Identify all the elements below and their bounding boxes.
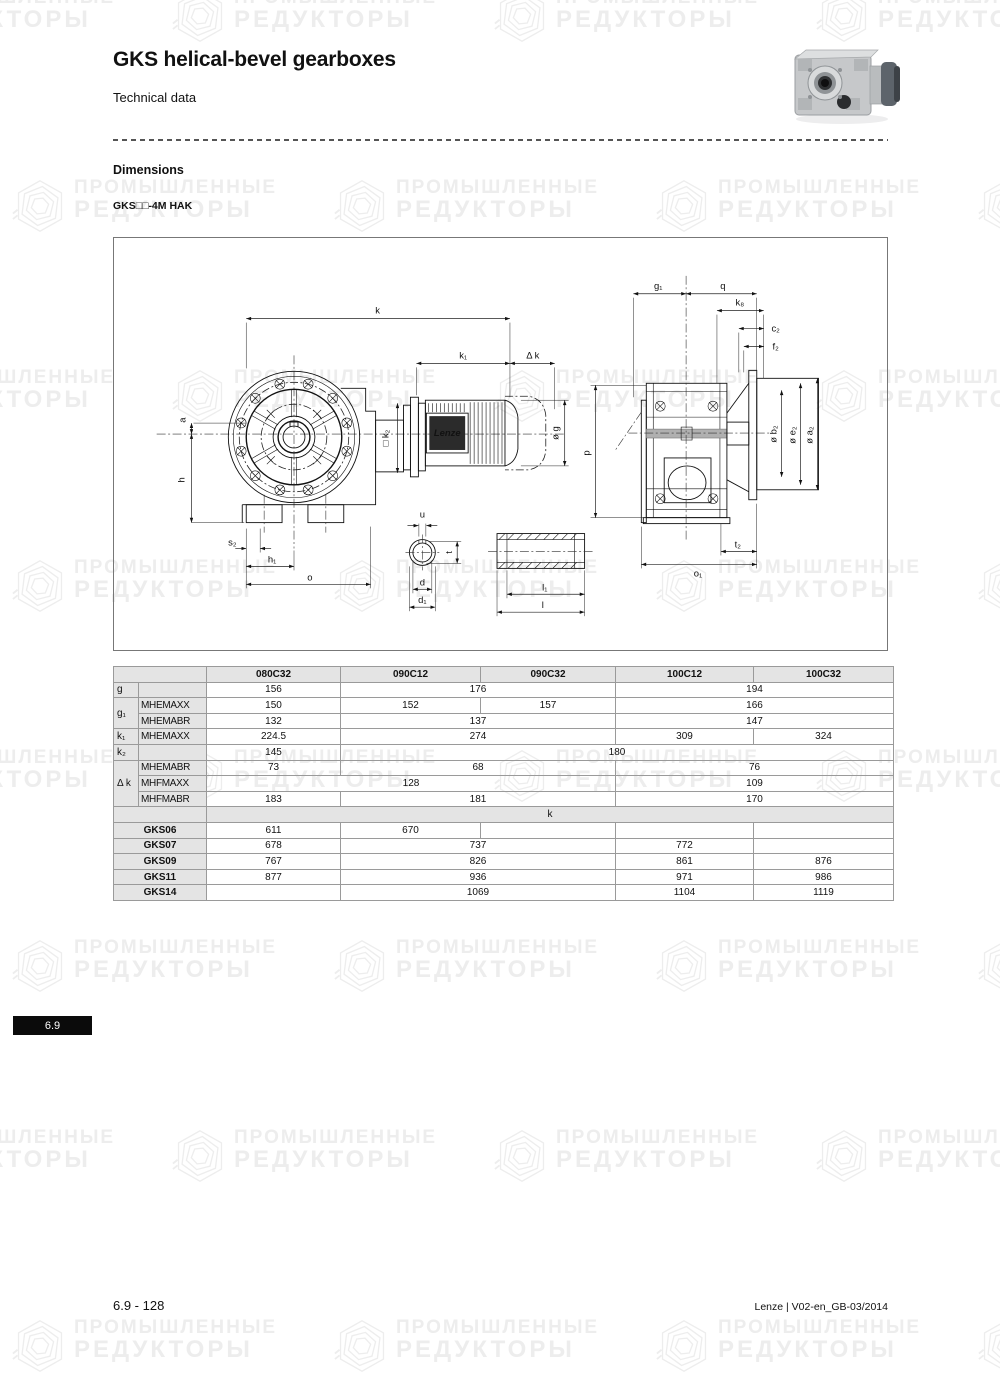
motor-side-view: Lenze — [403, 396, 545, 477]
gearbox-photo-illustration — [786, 42, 904, 126]
dim-label-k1: k₁ — [459, 350, 467, 361]
dimension-value: 971 — [616, 869, 754, 885]
section-heading: Dimensions — [113, 163, 184, 177]
dimension-value: 147 — [616, 713, 894, 729]
dim-label-u: u — [420, 510, 425, 521]
dim-label-s2: s₂ — [228, 538, 237, 549]
dimension-value: 128 — [207, 776, 616, 792]
dimension-value: 826 — [341, 854, 616, 870]
dimension-symbol: g₁ — [114, 698, 139, 729]
dimension-value: 109 — [616, 776, 894, 792]
gearbox-size-label: GKS09 — [114, 854, 207, 870]
dimension-value: 670 — [341, 822, 481, 838]
dim-label-t2: t₂ — [735, 539, 742, 550]
table-row: 080C32090C12090C32100C12100C32 — [114, 667, 894, 683]
dim-label-q: q — [720, 281, 725, 292]
catalog-page: ПРОМЫШЛЕННЫЕРЕДУКТОРЫ ПРОМЫШЛЕННЫЕРЕДУКТ… — [0, 0, 1000, 1395]
dimension-value: 157 — [481, 698, 616, 714]
motor-variant-label: MHFMAXX — [139, 776, 207, 792]
table-row: k₂145180 — [114, 744, 894, 760]
table-row: GKS06611670 — [114, 822, 894, 838]
dim-label-h: h — [177, 477, 188, 482]
shaft-end-detail — [405, 535, 439, 571]
dimension-drawing-svg: Lenze — [114, 238, 887, 650]
brand-label: Lenze — [434, 428, 461, 439]
dim-label-l1: l₁ — [542, 582, 547, 593]
dimension-value: 936 — [341, 869, 616, 885]
column-header: 080C32 — [207, 667, 341, 683]
motor-extension-dashed — [505, 396, 546, 470]
dimension-value — [207, 885, 341, 901]
table-row: k — [114, 807, 894, 823]
dimension-value: 1104 — [616, 885, 754, 901]
motor-variant-label: MHEMAXX — [139, 729, 207, 745]
footer-page-number: 6.9 - 128 — [113, 1298, 164, 1313]
dimension-value: 73 — [207, 760, 341, 776]
motor-variant-label — [139, 682, 207, 698]
dim-label-og: ø g — [551, 426, 562, 440]
dimension-value: 274 — [341, 729, 616, 745]
footer-document-id: Lenze | V02-en_GB-03/2014 — [755, 1301, 889, 1313]
dimension-value: 678 — [207, 838, 341, 854]
dimension-value: 986 — [754, 869, 894, 885]
dim-label-b2: ø b₂ — [769, 425, 780, 443]
dim-label-o1: o₁ — [694, 568, 702, 579]
page-subtitle: Technical data — [113, 90, 196, 105]
column-header: 090C32 — [481, 667, 616, 683]
dimension-value: 876 — [754, 854, 894, 870]
dashed-divider — [113, 139, 888, 141]
dimensions-front: k k₁ Δ k a h s₂ — [177, 306, 569, 589]
table-row: MHEMABR132137147 — [114, 713, 894, 729]
dimension-value: 224.5 — [207, 729, 341, 745]
table-row: GKS11877936971986 — [114, 869, 894, 885]
dimension-value: 737 — [341, 838, 616, 854]
table-row: g156176194 — [114, 682, 894, 698]
dimension-value: 309 — [616, 729, 754, 745]
column-header: 100C32 — [754, 667, 894, 683]
dim-label-k2: □ k₂ — [381, 429, 392, 446]
dimension-value: 145 — [207, 744, 341, 760]
dimension-value: 137 — [341, 713, 616, 729]
dimension-value: 76 — [616, 760, 894, 776]
dimension-value: 156 — [207, 682, 341, 698]
bushing-detail — [488, 534, 592, 569]
table-row: GKS09767826861876 — [114, 854, 894, 870]
dim-label-t: t — [444, 551, 455, 554]
dimension-value: 176 — [341, 682, 616, 698]
dimension-value: 877 — [207, 869, 341, 885]
motor-variant-label: MHEMABR — [139, 713, 207, 729]
chapter-tab-badge: 6.9 — [13, 1016, 92, 1035]
gearbox-size-label: GKS07 — [114, 838, 207, 854]
dimension-value: 861 — [616, 854, 754, 870]
dim-label-e2: ø e₂ — [788, 426, 799, 444]
dimension-value: 180 — [341, 744, 894, 760]
shaft-section — [646, 429, 727, 438]
table-row: GKS07678737772 — [114, 838, 894, 854]
front-view — [157, 355, 565, 548]
dimension-value: 772 — [616, 838, 754, 854]
dimension-value: 194 — [616, 682, 894, 698]
page-title: GKS helical-bevel gearboxes — [113, 48, 396, 72]
dimension-value — [754, 838, 894, 854]
dim-label-p: p — [582, 450, 593, 455]
dimension-value — [481, 822, 616, 838]
motor-fins — [470, 402, 502, 464]
k-section-header — [114, 807, 207, 823]
dimension-value: 166 — [616, 698, 894, 714]
gearbox-size-label: GKS14 — [114, 885, 207, 901]
dimension-value: 68 — [341, 760, 616, 776]
model-label: GKS□□-4M HAK — [113, 200, 192, 212]
table-row: g₁MHEMAXX150152157166 — [114, 698, 894, 714]
dimension-value — [754, 822, 894, 838]
dim-label-o: o — [307, 572, 312, 583]
product-photo — [786, 42, 904, 131]
dimension-value: 324 — [754, 729, 894, 745]
dimension-value: 170 — [616, 791, 894, 807]
dimension-symbol: Δ k — [114, 760, 139, 807]
dim-label-k: k — [375, 306, 380, 317]
dim-label-a: a — [178, 417, 189, 423]
dimension-value: 767 — [207, 854, 341, 870]
dim-label-d1: d₁ — [418, 595, 426, 606]
gearbox-size-label: GKS11 — [114, 869, 207, 885]
dimension-value: 181 — [341, 791, 616, 807]
dim-label-c2: c₂ — [771, 324, 780, 335]
k-section-header: k — [207, 807, 894, 823]
dimension-symbol: k₁ — [114, 729, 139, 745]
motor-variant-label: MHFMABR — [139, 791, 207, 807]
dim-label-l: l — [542, 600, 544, 611]
table-row: Δ kMHEMABR736876 — [114, 760, 894, 776]
gearbox-size-label: GKS06 — [114, 822, 207, 838]
dimension-value: 150 — [207, 698, 341, 714]
column-header — [114, 667, 207, 683]
dim-label-a2: ø a₂ — [804, 426, 815, 444]
dim-label-h1: h₁ — [268, 554, 276, 565]
dimensions-table: 080C32090C12090C32100C12100C32g156176194… — [113, 666, 894, 901]
dim-label-d: d — [420, 577, 425, 588]
dimension-value: 1119 — [754, 885, 894, 901]
chapter-tab-number: 6.9 — [45, 1020, 60, 1032]
motor-variant-label: MHEMAXX — [139, 698, 207, 714]
table-row: MHFMAXX128109 — [114, 776, 894, 792]
column-header: 090C12 — [341, 667, 481, 683]
table-row: GKS14106911041119 — [114, 885, 894, 901]
dim-label-dk: Δ k — [526, 350, 539, 361]
dimension-value: 152 — [341, 698, 481, 714]
dim-label-f2: f₂ — [773, 341, 780, 352]
motor-variant-label — [139, 744, 207, 760]
motor-variant-label: MHEMABR — [139, 760, 207, 776]
dimension-symbol: g — [114, 682, 139, 698]
dimension-value: 611 — [207, 822, 341, 838]
dimension-value — [616, 822, 754, 838]
dim-label-k8: k₈ — [736, 298, 745, 309]
dimension-value: 132 — [207, 713, 341, 729]
column-header: 100C12 — [616, 667, 754, 683]
dimension-drawing: Lenze — [113, 237, 888, 651]
table-row: k₁MHEMAXX224.5274309324 — [114, 729, 894, 745]
table-row: MHFMABR183181170 — [114, 791, 894, 807]
dimension-symbol: k₂ — [114, 744, 139, 760]
dim-label-g1: g₁ — [654, 281, 662, 292]
dimension-value: 1069 — [341, 885, 616, 901]
dimension-value: 183 — [207, 791, 341, 807]
